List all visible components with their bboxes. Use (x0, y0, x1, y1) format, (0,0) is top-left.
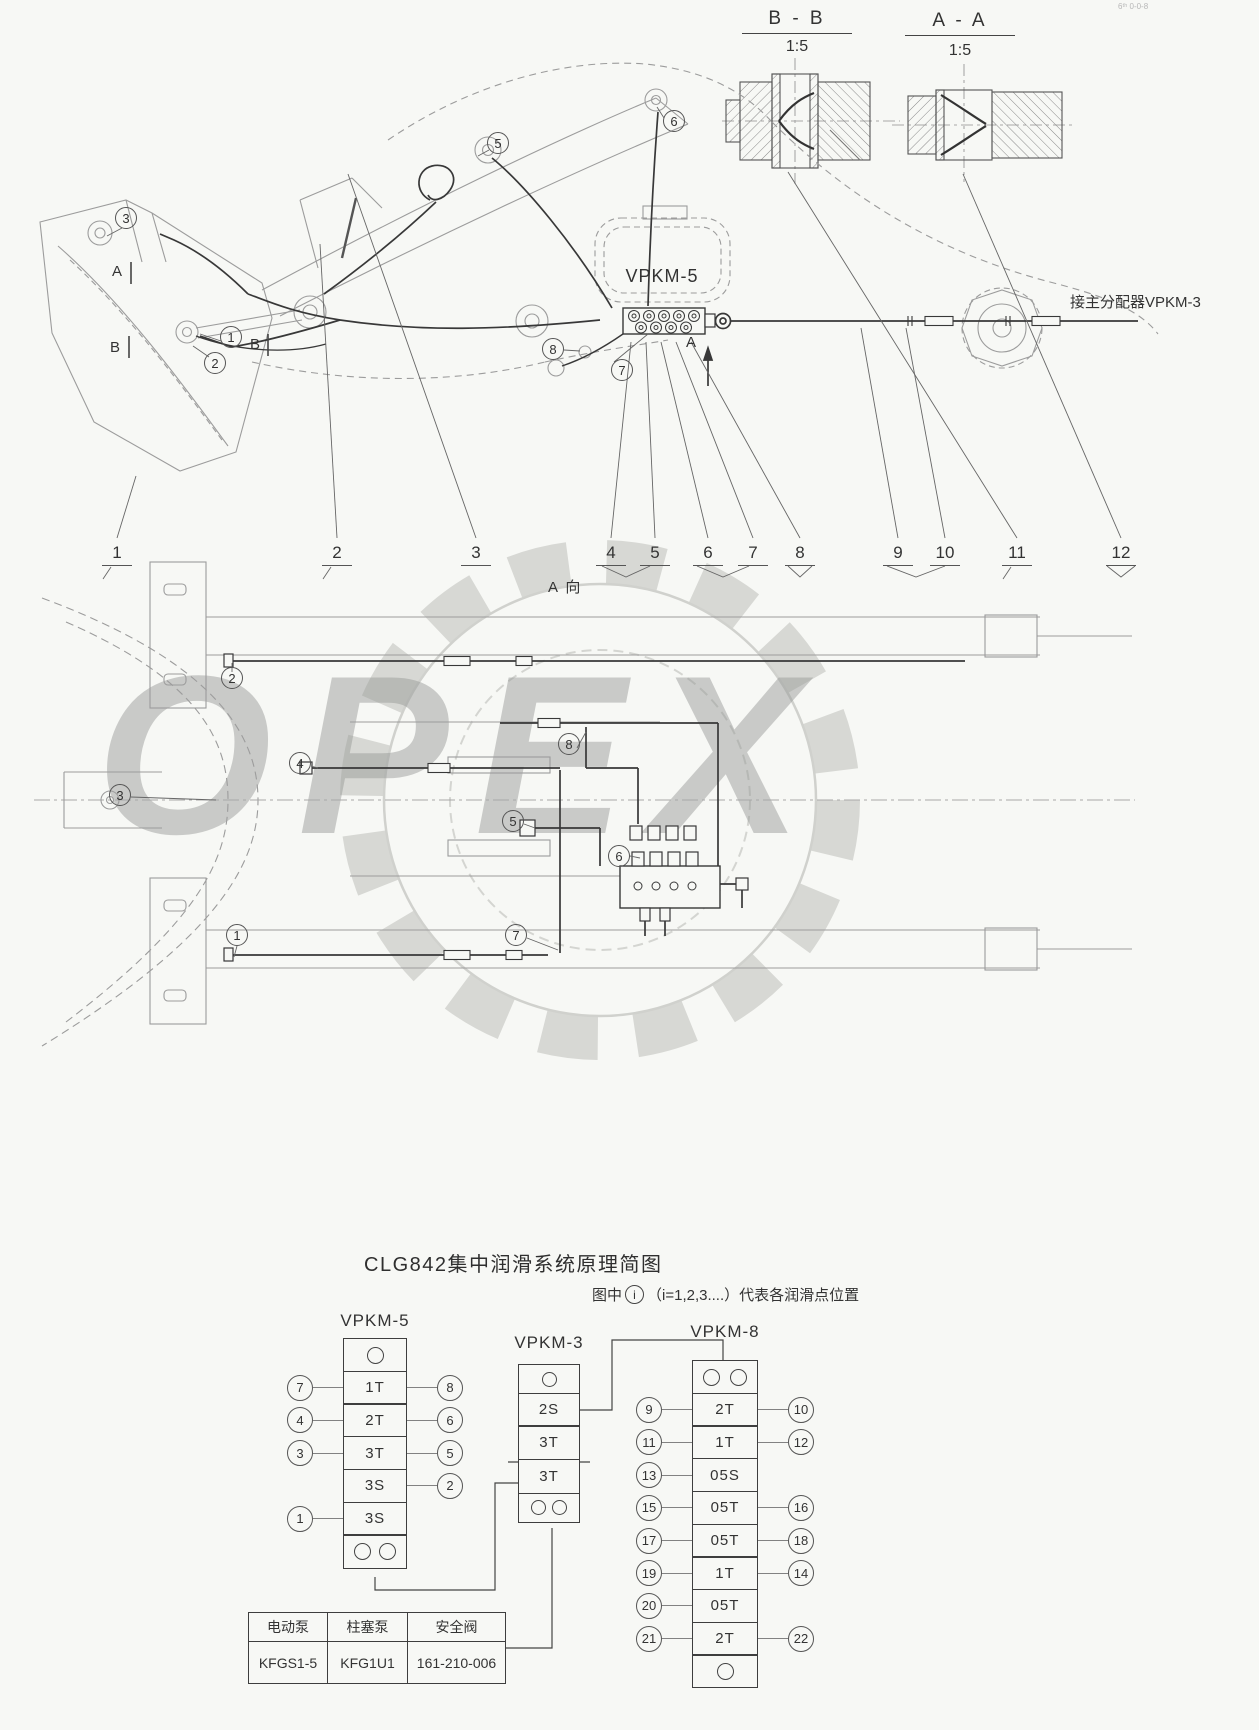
port-cell: 05S (692, 1458, 758, 1492)
note-prefix: 图中 (592, 1284, 622, 1305)
item-number-4: 4 (596, 543, 626, 566)
port-callout: 22 (788, 1626, 814, 1652)
port-callout: 12 (788, 1429, 814, 1455)
plan-callout-1: 1 (226, 924, 248, 946)
port-callout: 5 (437, 1440, 463, 1466)
port-cell: 1T (692, 1556, 758, 1590)
plan-callout-3: 3 (109, 784, 131, 806)
port-callout: 21 (636, 1626, 662, 1652)
vpkm3-block-title: VPKM-3 (469, 1333, 629, 1353)
lube-point-callout-8: 8 (542, 338, 564, 360)
port-cell: 2S (518, 1393, 580, 1427)
port-callout: 14 (788, 1560, 814, 1586)
port-cell: 3S (343, 1502, 407, 1536)
port-circle-icon (379, 1543, 396, 1560)
vpkm5-block-title: VPKM-5 (287, 1311, 463, 1331)
vpkm5-housing (595, 218, 730, 302)
vpkm8-row-05s: 13 05S (636, 1458, 814, 1492)
vpkm8-outlet-row (636, 1654, 814, 1688)
port-cell: 1T (343, 1371, 407, 1405)
port-circle-icon (367, 1347, 384, 1364)
item-number-8: 8 (785, 543, 815, 566)
item-number-6: 6 (693, 543, 723, 566)
port-callout: 16 (788, 1495, 814, 1521)
port-callout: 6 (437, 1407, 463, 1433)
port-callout: 15 (636, 1495, 662, 1521)
port-circle-icon (730, 1369, 747, 1386)
vpkm5-block: VPKM-5 7 1T 8 4 2T 6 3 3T 5 3S 2 1 3S (287, 1338, 463, 1569)
lube-point-callout-7: 7 (611, 359, 633, 381)
pump-table-model: 161-210-006 (407, 1641, 505, 1683)
port-callout: 10 (788, 1397, 814, 1423)
plan-callout-2: 2 (221, 667, 243, 689)
port-callout: 19 (636, 1560, 662, 1586)
vpkm8-row-2t-a: 9 2T 10 (636, 1393, 814, 1427)
port-circle-icon (354, 1543, 371, 1560)
port-cell: 05T (692, 1491, 758, 1525)
note-i-circle-icon: i (625, 1285, 644, 1304)
vpkm8-block: VPKM-8 9 2T 10 11 1T 12 13 05S 15 05T 16… (636, 1360, 814, 1688)
section-bb-scale: 1:5 (742, 38, 852, 56)
port-cell: 3S (343, 1469, 407, 1503)
vpkm5-inlet-row (287, 1338, 463, 1372)
vpkm3-inlet-row (518, 1364, 580, 1394)
vpkm8-inlet-row (636, 1360, 814, 1394)
schematic-title: CLG842集中润滑系统原理简图 (364, 1248, 663, 1277)
port-cell: 1T (692, 1425, 758, 1459)
port-circle-icon (552, 1500, 567, 1515)
port-cell: 3T (343, 1436, 407, 1470)
vpkm5-row-2t: 4 2T 6 (287, 1403, 463, 1437)
port-callout: 18 (788, 1528, 814, 1554)
section-mark-b2: B (250, 336, 260, 353)
item-number-2: 2 (322, 543, 352, 566)
item-number-1: 1 (102, 543, 132, 566)
vpkm8-row-05t-c: 20 05T (636, 1589, 814, 1623)
port-callout: 9 (636, 1397, 662, 1423)
lube-point-callout-2: 2 (204, 352, 226, 374)
port-callout: 3 (287, 1440, 313, 1466)
vpkm5-row-3s-b: 1 3S (287, 1502, 463, 1536)
pump-table-model: KFG1U1 (327, 1641, 407, 1683)
drawing-linework (0, 0, 1259, 1730)
pipe-destination-note: 接主分配器VPKM-3 (1070, 291, 1201, 312)
vpkm3-row-2s: 2S (518, 1393, 580, 1427)
pump-table-header: 电动泵 (249, 1613, 327, 1641)
note-suffix: （i=1,2,3....）代表各润滑点位置 (647, 1284, 859, 1305)
plan-callout-5: 5 (502, 810, 524, 832)
plan-view-grease-lines (131, 654, 965, 961)
item-number-12: 12 (1106, 543, 1136, 566)
section-mark-b1: B (110, 339, 120, 356)
hose-loop (419, 165, 454, 200)
plan-callout-7: 7 (505, 924, 527, 946)
lube-point-callout-1: 1 (220, 326, 242, 348)
vpkm8-row-1t-a: 11 1T 12 (636, 1425, 814, 1459)
section-mark-a: A (112, 263, 122, 280)
port-circle-icon (703, 1369, 720, 1386)
port-circle-icon (531, 1500, 546, 1515)
vpkm3-row-3t-b: 3T (518, 1459, 580, 1494)
item-number-9: 9 (883, 543, 913, 566)
plan-callout-4: 4 (289, 752, 311, 774)
side-view-grease-lines (129, 112, 1138, 386)
lube-point-callout-5: 5 (487, 132, 509, 154)
port-circle-icon (717, 1663, 734, 1680)
item-number-3: 3 (461, 543, 491, 566)
section-aa-scale: 1:5 (905, 42, 1015, 60)
item-number-10: 10 (930, 543, 960, 566)
port-callout: 17 (636, 1528, 662, 1554)
vpkm3-row-3t-a: 3T (518, 1425, 580, 1460)
vpkm5-row-1t: 7 1T 8 (287, 1371, 463, 1405)
pump-table: 电动泵 柱塞泵 安全阀 KFGS1-5 KFG1U1 161-210-006 (248, 1612, 506, 1684)
vpkm8-row-05t-b: 17 05T 18 (636, 1524, 814, 1558)
section-aa-title: A - A (905, 10, 1015, 36)
port-circle-icon (542, 1372, 557, 1387)
port-callout: 13 (636, 1462, 662, 1488)
vpkm3-to-pump-line (505, 1528, 552, 1648)
vpkm8-row-05t-a: 15 05T 16 (636, 1491, 814, 1525)
pump-table-model: KFGS1-5 (249, 1641, 327, 1683)
vpkm5-row-3s-a: 3S 2 (287, 1469, 463, 1503)
item-number-7: 7 (738, 543, 768, 566)
vpkm5-row-3t: 3 3T 5 (287, 1436, 463, 1470)
port-cell: 05T (692, 1524, 758, 1558)
port-callout: 1 (287, 1506, 313, 1532)
vpkm8-row-2t-b: 21 2T 22 (636, 1622, 814, 1656)
vpkm8-row-1t-b: 19 1T 14 (636, 1556, 814, 1590)
plan-view-machine (34, 562, 1135, 1046)
vpkm8-block-title: VPKM-8 (636, 1322, 814, 1342)
port-callout: 4 (287, 1407, 313, 1433)
port-cell: 2T (343, 1403, 407, 1437)
plan-callout-8: 8 (558, 733, 580, 755)
item-number-5: 5 (640, 543, 670, 566)
section-bb-title: B - B (742, 8, 852, 34)
port-cell: 3T (518, 1425, 580, 1460)
port-callout: 2 (437, 1473, 463, 1499)
port-cell: 2T (692, 1622, 758, 1656)
lube-point-callout-3: 3 (115, 207, 137, 229)
port-callout: 8 (437, 1375, 463, 1401)
item-number-11: 11 (1002, 543, 1032, 566)
frame-rails (206, 617, 1040, 968)
section-aa-drawing (892, 64, 1072, 182)
drawing-sheet: OPEX (0, 0, 1259, 1730)
plan-view-label: A 向 (548, 576, 582, 597)
corner-mark: 6ᵗʰ 0-0-8 (1118, 2, 1148, 11)
vpkm5-housing-label: VPKM-5 (597, 266, 727, 287)
view-a-arrow-label: A (686, 334, 696, 351)
port-cell: 2T (692, 1393, 758, 1427)
schematic-note: 图中 i （i=1,2,3....）代表各润滑点位置 (592, 1284, 859, 1305)
vpkm3-block: VPKM-3 2S 3T 3T (518, 1364, 580, 1523)
pump-table-header: 安全阀 (407, 1613, 505, 1641)
port-callout: 11 (636, 1429, 662, 1455)
vpkm3-outlet-row (518, 1493, 580, 1523)
port-cell: 3T (518, 1459, 580, 1494)
pump-table-header: 柱塞泵 (327, 1613, 407, 1641)
port-cell: 05T (692, 1589, 758, 1623)
section-bb-drawing (722, 58, 900, 184)
port-callout: 20 (636, 1593, 662, 1619)
vpkm5-outlet-row (287, 1534, 463, 1569)
port-callout: 7 (287, 1375, 313, 1401)
lube-point-callout-6: 6 (663, 110, 685, 132)
plan-callout-6: 6 (608, 845, 630, 867)
